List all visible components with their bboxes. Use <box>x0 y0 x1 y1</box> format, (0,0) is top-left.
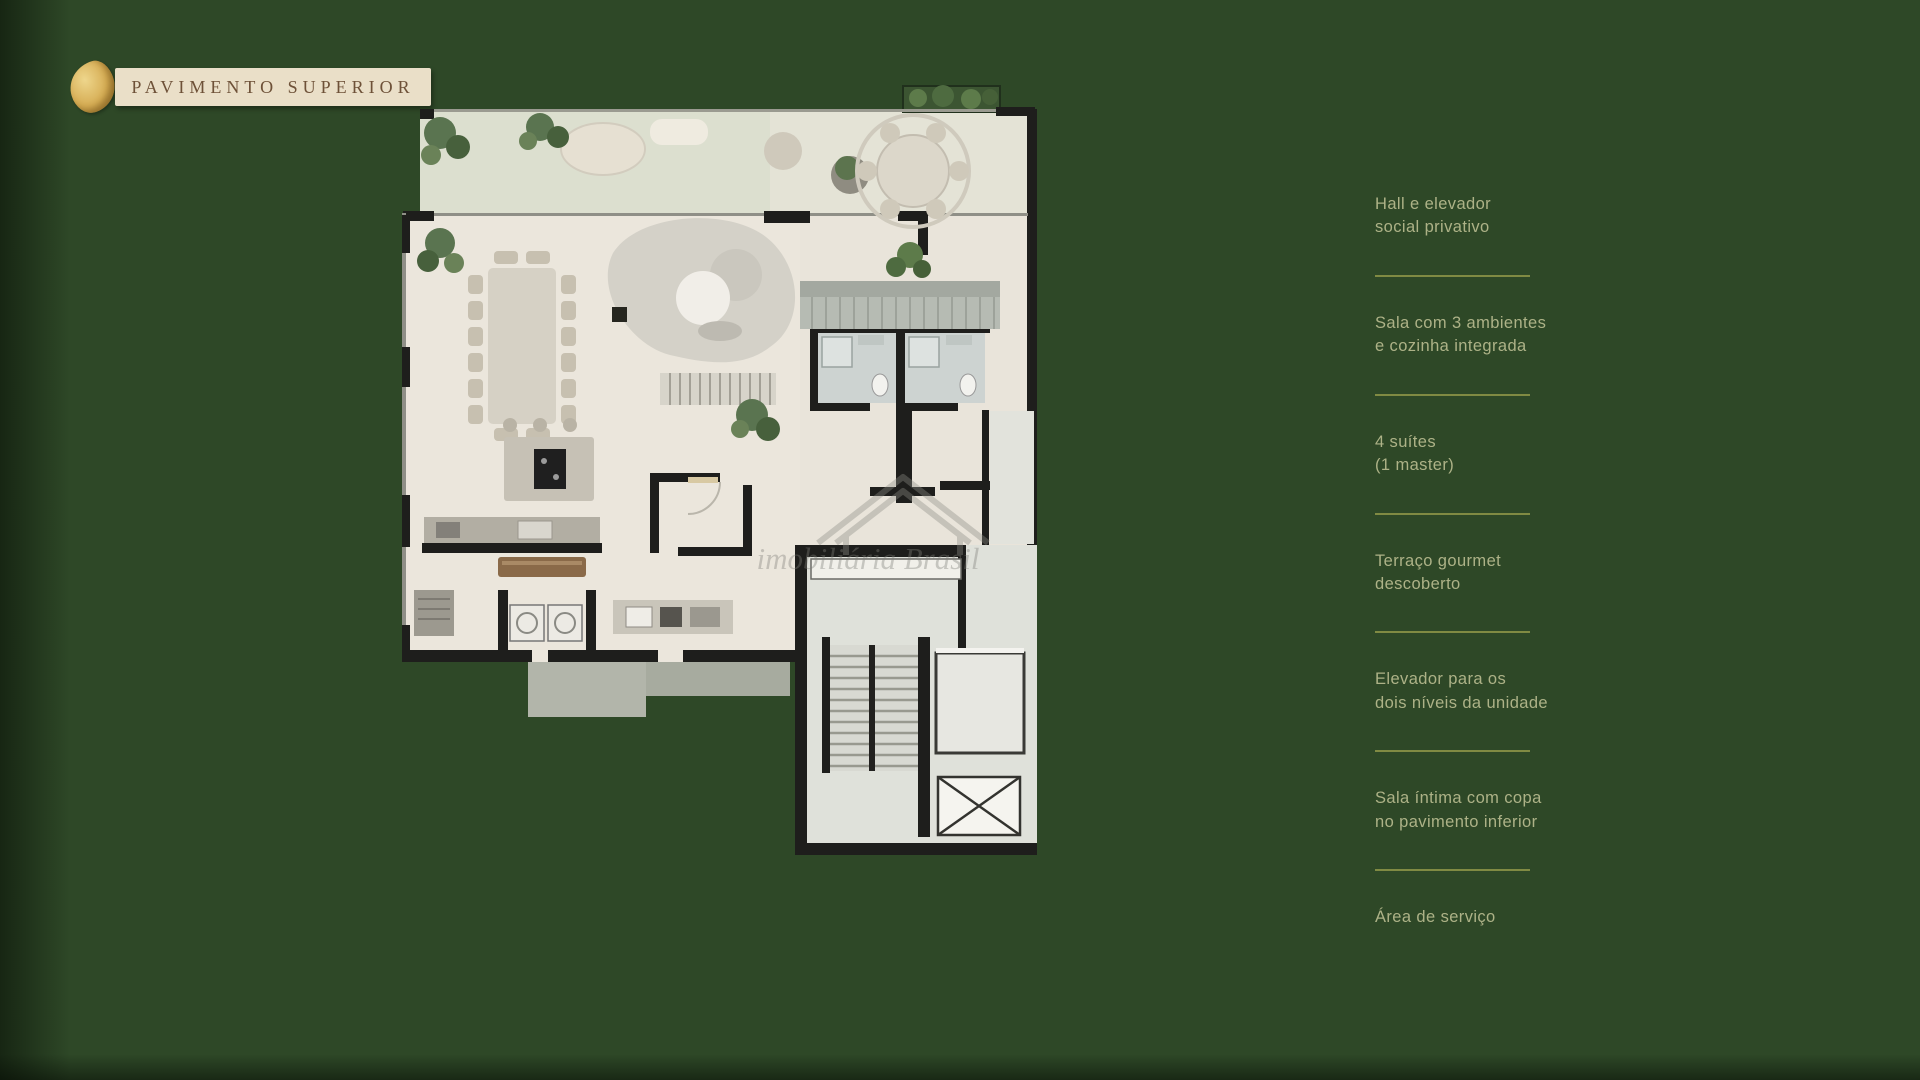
feature-divider <box>1375 750 1530 752</box>
shower-2 <box>909 337 939 367</box>
feature-line: Terraço gourmet <box>1375 550 1655 573</box>
feature-item: Elevador para os dois níveis da unidade <box>1375 668 1655 715</box>
feature-item: Sala com 3 ambientes e cozinha integrada <box>1375 312 1655 359</box>
terrace-lounger <box>650 119 708 145</box>
sink <box>436 522 460 538</box>
stair-rail <box>869 645 875 771</box>
feature-divider <box>1375 869 1530 871</box>
left-edge-shadow <box>0 0 70 1080</box>
gourmet-counter <box>800 281 1000 329</box>
feature-line: social privativo <box>1375 216 1655 239</box>
toilet-2 <box>960 374 976 396</box>
dining-table <box>488 268 556 424</box>
terrace-pouf <box>764 132 802 170</box>
leaf-icon <box>64 57 121 117</box>
shower-1 <box>822 337 852 367</box>
feature-line: Hall e elevador <box>1375 193 1655 216</box>
title-banner: PAVIMENTO SUPERIOR <box>115 68 431 106</box>
internal-stairs <box>660 373 776 405</box>
feature-item: Sala íntima com copa no pavimento inferi… <box>1375 787 1655 834</box>
feature-divider <box>1375 275 1530 277</box>
feature-line: (1 master) <box>1375 454 1655 477</box>
feature-item: Terraço gourmet descoberto <box>1375 550 1655 597</box>
watermark-text: imobiliária Brasil <box>756 541 979 576</box>
toilet-1 <box>872 374 888 396</box>
washer-2 <box>548 605 582 641</box>
coffee-table <box>676 271 730 325</box>
feature-line: descoberto <box>1375 573 1655 596</box>
wing-closet <box>990 411 1034 544</box>
page-title: PAVIMENTO SUPERIOR <box>131 77 414 98</box>
feature-line: no pavimento inferior <box>1375 811 1655 834</box>
bottom-edge-shadow <box>0 1054 1920 1080</box>
terrace-rug <box>561 123 645 175</box>
wood-bench <box>498 557 586 577</box>
washer-1 <box>510 605 544 641</box>
feature-line: dois níveis da unidade <box>1375 692 1655 715</box>
feature-item: Hall e elevador social privativo <box>1375 193 1655 240</box>
feature-line: e cozinha integrada <box>1375 335 1655 358</box>
round-dining-table <box>877 135 949 207</box>
feature-divider <box>1375 513 1530 515</box>
planter-box <box>903 85 1000 112</box>
laundry-appliance <box>414 590 454 636</box>
feature-line: Área de serviço <box>1375 906 1655 929</box>
feature-item: 4 suítes (1 master) <box>1375 431 1655 478</box>
elevator <box>936 653 1024 753</box>
feature-line: Elevador para os <box>1375 668 1655 691</box>
feature-divider <box>1375 631 1530 633</box>
cooktop <box>534 449 566 489</box>
feature-list: Hall e elevador social privativo Sala co… <box>1375 193 1655 964</box>
balcony-apron-step <box>528 662 646 717</box>
feature-item: Área de serviço <box>1375 906 1655 929</box>
feature-divider <box>1375 394 1530 396</box>
feature-line: Sala íntima com copa <box>1375 787 1655 810</box>
feature-line: Sala com 3 ambientes <box>1375 312 1655 335</box>
floor-plan: imobiliária Brasil <box>398 85 1038 857</box>
feature-line: 4 suítes <box>1375 431 1655 454</box>
side-table <box>612 307 627 322</box>
